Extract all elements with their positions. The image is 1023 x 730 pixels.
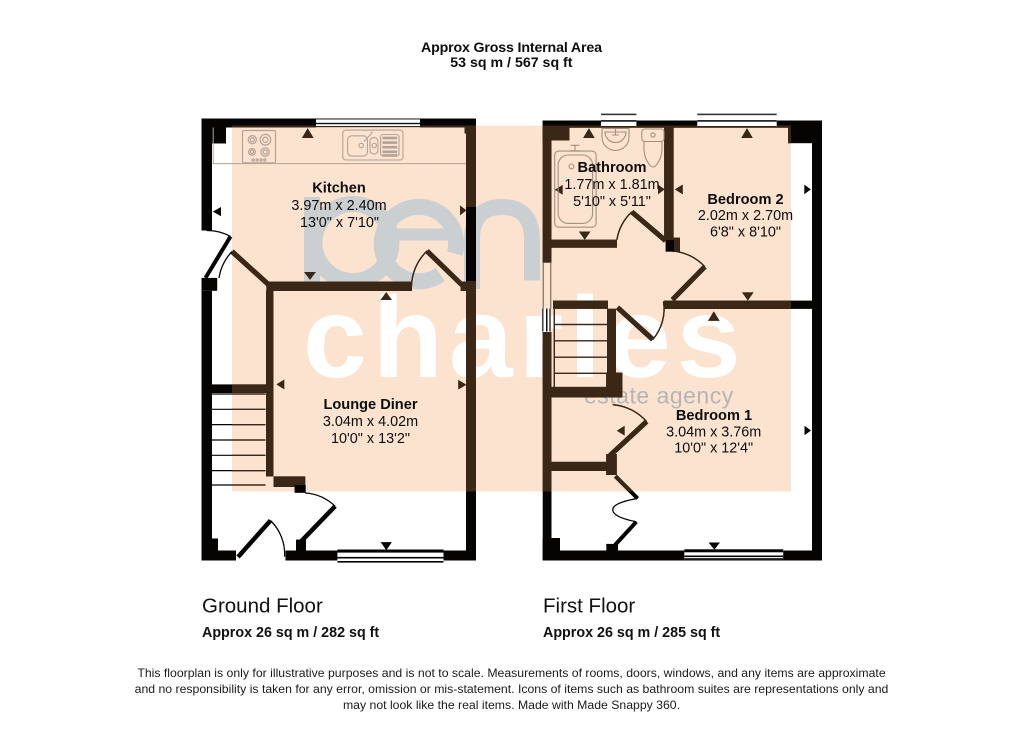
- svg-text:13'0" x 7'10": 13'0" x 7'10": [300, 215, 379, 231]
- svg-text:Bedroom 1: Bedroom 1: [676, 408, 752, 424]
- svg-text:1.77m x 1.81m: 1.77m x 1.81m: [564, 177, 659, 193]
- svg-text:Approx 26 sq m / 285 sq ft: Approx 26 sq m / 285 sq ft: [543, 625, 720, 641]
- svg-text:and no responsibility is taken: and no responsibility is taken for any e…: [135, 682, 889, 696]
- svg-text:3.97m x 2.40m: 3.97m x 2.40m: [291, 198, 386, 214]
- svg-text:3.04m x 3.76m: 3.04m x 3.76m: [666, 424, 761, 440]
- svg-text:2.02m x 2.70m: 2.02m x 2.70m: [698, 208, 793, 224]
- svg-text:3.04m x 4.02m: 3.04m x 4.02m: [323, 414, 418, 430]
- svg-text:10'0" x 13'2": 10'0" x 13'2": [331, 431, 410, 447]
- svg-text:may not look like the real ite: may not look like the real items. Made w…: [343, 698, 680, 712]
- svg-text:Approx Gross Internal Area: Approx Gross Internal Area: [421, 40, 602, 56]
- svg-text:5'10" x 5'11": 5'10" x 5'11": [573, 194, 651, 210]
- svg-text:This floorplan is only for ill: This floorplan is only for illustrative …: [137, 666, 885, 680]
- svg-text:6'8" x 8'10": 6'8" x 8'10": [710, 225, 781, 241]
- svg-text:10'0" x 12'4": 10'0" x 12'4": [674, 440, 753, 456]
- svg-text:Kitchen: Kitchen: [312, 181, 366, 197]
- svg-text:First Floor: First Floor: [543, 595, 635, 618]
- svg-text:Bathroom: Bathroom: [578, 160, 647, 176]
- svg-text:Bedroom 2: Bedroom 2: [707, 192, 783, 208]
- svg-text:53 sq m / 567 sq ft: 53 sq m / 567 sq ft: [450, 55, 572, 71]
- svg-text:Approx 26 sq m / 282 sq ft: Approx 26 sq m / 282 sq ft: [202, 625, 379, 641]
- svg-text:Ground Floor: Ground Floor: [202, 595, 323, 618]
- svg-text:Lounge Diner: Lounge Diner: [323, 397, 417, 413]
